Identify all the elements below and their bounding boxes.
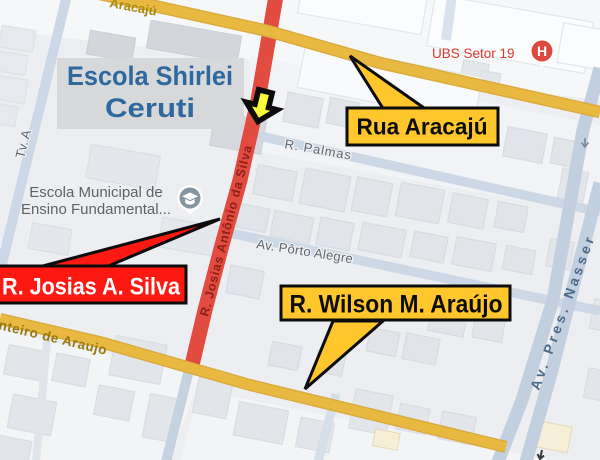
svg-text:H: H: [537, 43, 547, 59]
svg-text:R. Wilson M. Araújo: R. Wilson M. Araújo: [290, 291, 503, 319]
svg-text:Ensino Fundamental...: Ensino Fundamental...: [21, 201, 171, 218]
svg-text:UBS Setor 19: UBS Setor 19: [432, 46, 515, 61]
svg-text:Ceruti: Ceruti: [105, 93, 195, 123]
svg-text:Escola Shirlei: Escola Shirlei: [67, 61, 233, 91]
svg-text:Rua Aracajú: Rua Aracajú: [357, 114, 488, 140]
svg-text:R. Josias A. Silva: R. Josias A. Silva: [2, 274, 181, 301]
svg-text:Escola Municipal de: Escola Municipal de: [29, 184, 162, 201]
